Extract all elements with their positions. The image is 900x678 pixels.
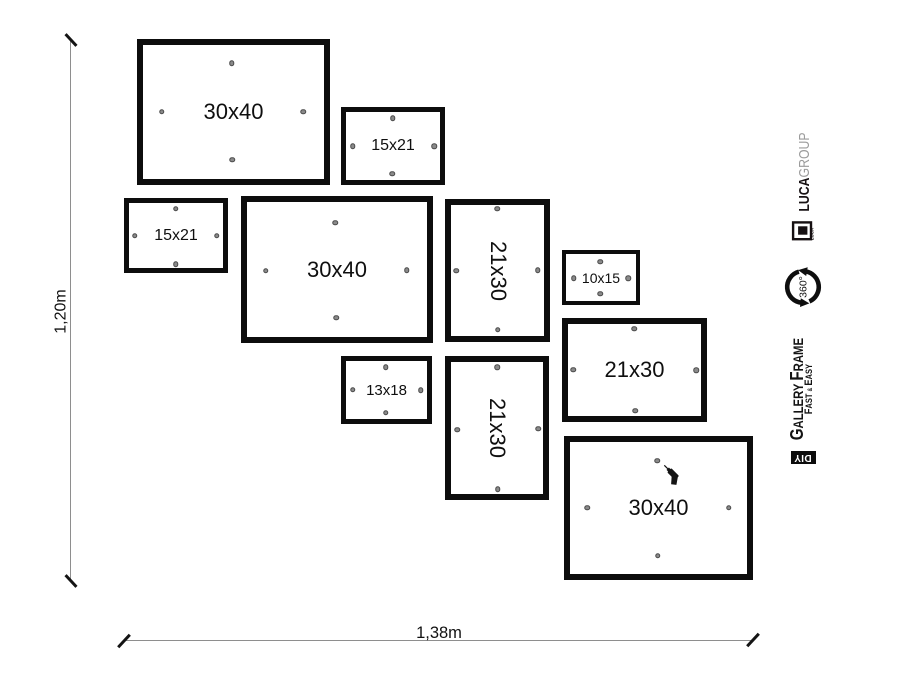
- svg-text:LUCA: LUCA: [810, 227, 815, 240]
- svg-text:360°: 360°: [798, 276, 810, 298]
